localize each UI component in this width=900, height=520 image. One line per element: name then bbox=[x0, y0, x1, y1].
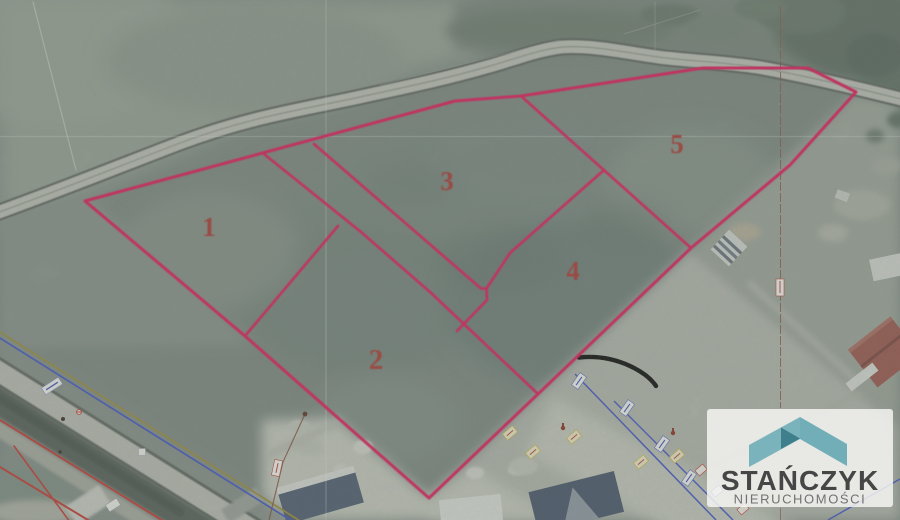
svg-text:NIERUCHOMOŚCI: NIERUCHOMOŚCI bbox=[734, 492, 867, 507]
